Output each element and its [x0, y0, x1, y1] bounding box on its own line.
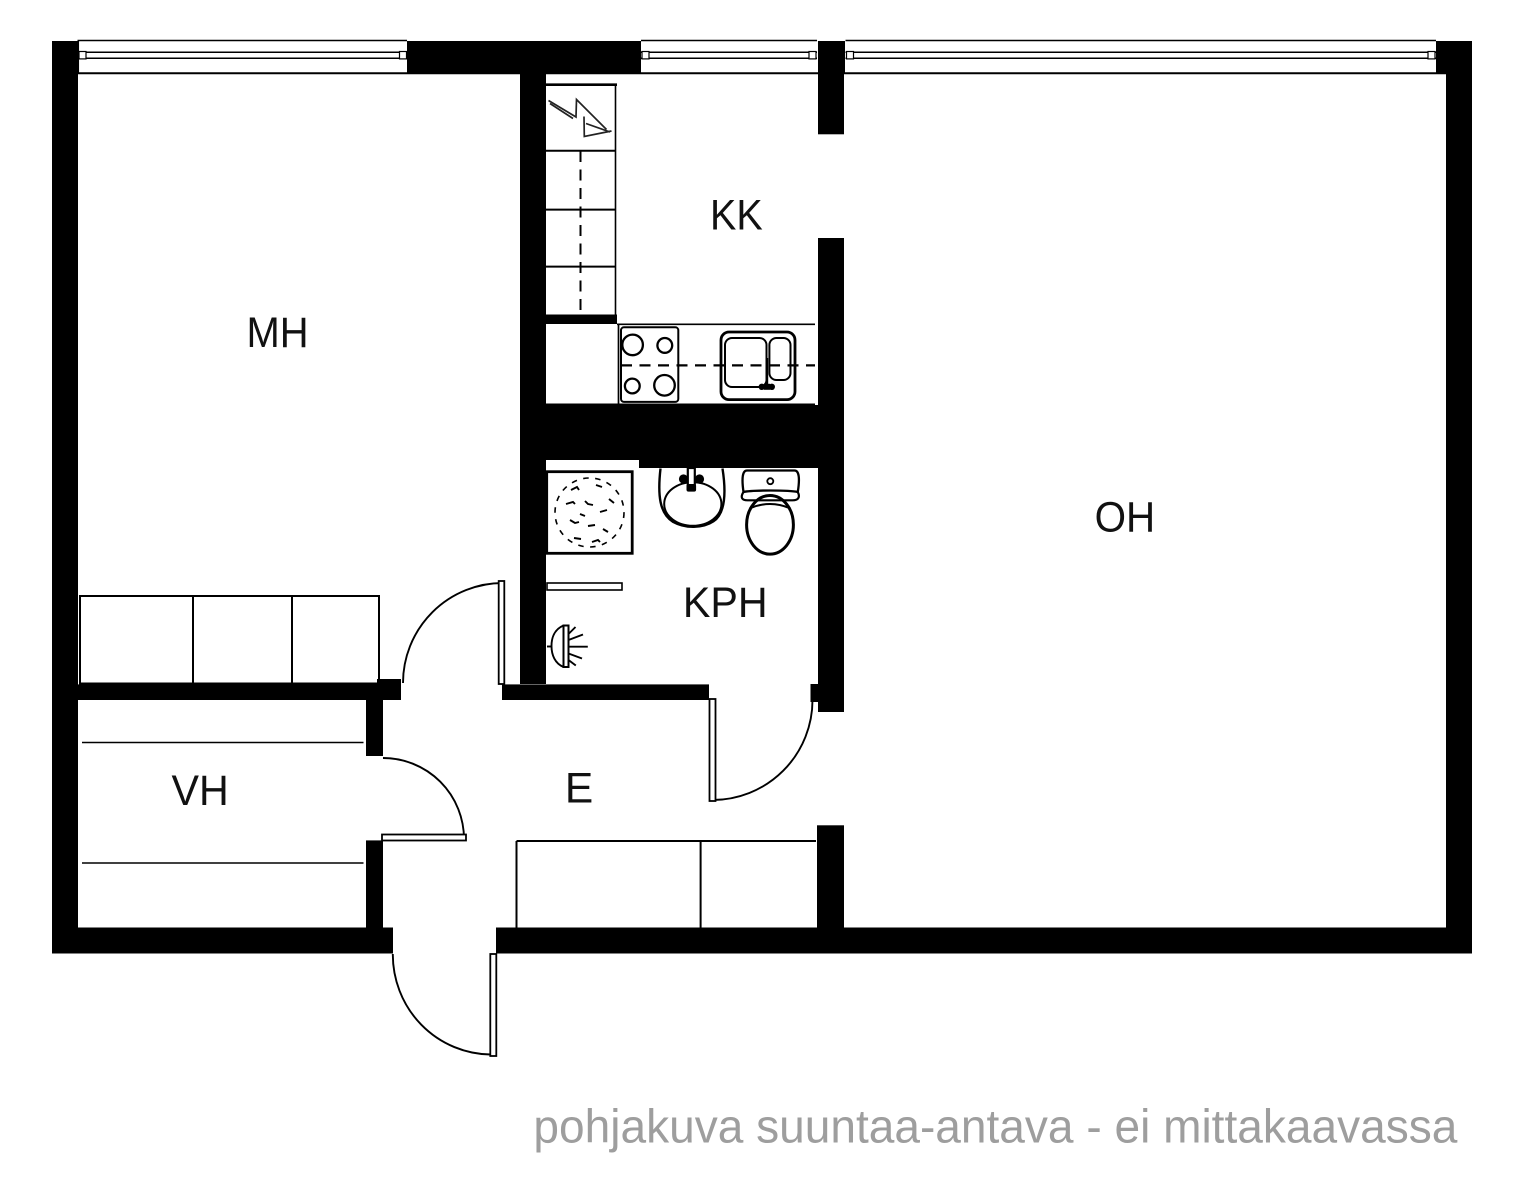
svg-text:KK: KK — [710, 191, 763, 239]
svg-text:MH: MH — [247, 309, 309, 356]
svg-text:E: E — [565, 766, 593, 813]
svg-text:pohjakuva suuntaa-antava - ei: pohjakuva suuntaa-antava - ei mittakaava… — [533, 1100, 1457, 1153]
svg-text:VH: VH — [171, 766, 228, 814]
svg-text:KPH: KPH — [683, 578, 768, 626]
svg-text:OH: OH — [1095, 493, 1156, 541]
